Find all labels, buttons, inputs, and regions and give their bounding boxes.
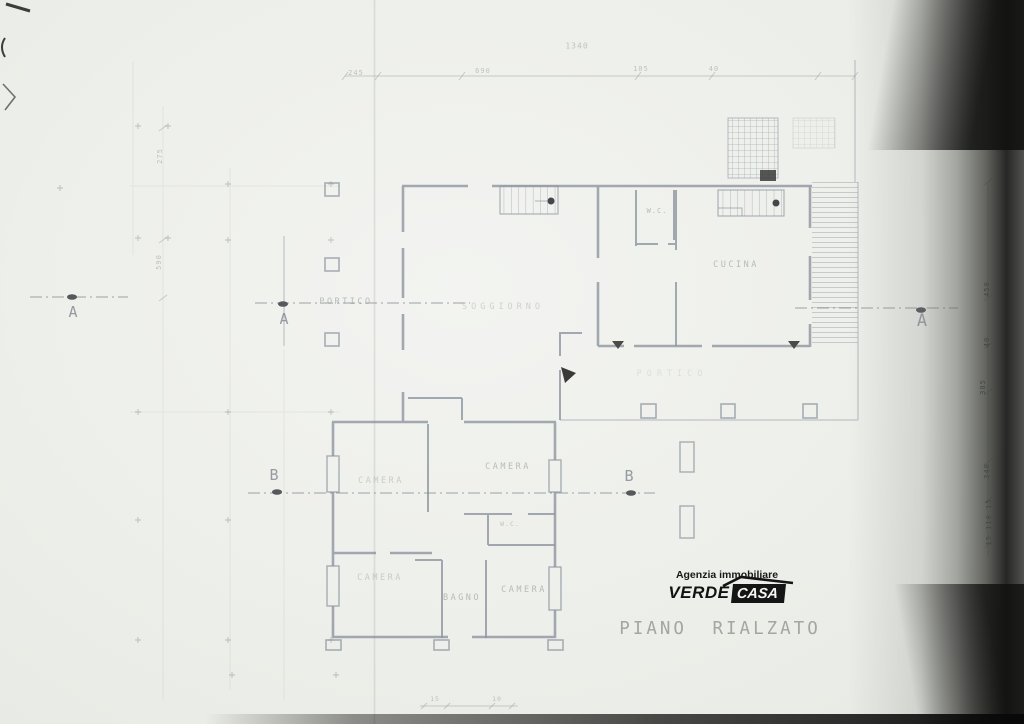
dimension-right-3: 305 (979, 379, 987, 395)
pencil-cross-marks (57, 123, 339, 678)
side-ramp-hatch (812, 182, 858, 344)
room-label-camera-left: CAMERA (358, 476, 404, 486)
entrance-arrow (561, 367, 576, 383)
dimension-left-1: 275 (156, 148, 164, 164)
section-marker-a-portico: A (279, 310, 288, 328)
scan-corner-marks (2, 4, 30, 110)
room-label-camera-center: CAMERA (485, 462, 531, 472)
room-label-wc-lower: W.C. (500, 520, 520, 528)
dimension-bottom-2: 10 (492, 695, 502, 703)
room-label-camera-bottom-center: CAMERA (501, 585, 547, 595)
dimension-top-4: 105 (633, 65, 649, 73)
room-label-portico-rear: PORTICO (637, 369, 708, 379)
exterior-stair-hatch (728, 118, 835, 181)
terrace-edges (284, 60, 858, 420)
dimension-right-5: 15 110 15 (985, 499, 993, 546)
inner-walls (408, 190, 676, 638)
room-label-wc-upper: W.C. (647, 207, 668, 215)
dimension-left-2: 590 (155, 254, 163, 270)
agency-logo: Agenzia immobiliare VERDE CASA (664, 569, 790, 603)
section-marker-a-left: A (68, 303, 77, 321)
section-marker-a-right: A (917, 311, 927, 331)
room-label-soggiorno: SOGGIORNO (462, 302, 544, 312)
dimension-top-1: 245 (348, 69, 364, 77)
room-label-cucina: CUCINA (713, 260, 759, 270)
floor-plan-drawing (0, 0, 1024, 724)
room-label-bagno: BAGNO (443, 593, 481, 603)
agency-brand: VERDE CASA (664, 583, 790, 603)
room-label-camera-bottom-left: CAMERA (357, 573, 403, 583)
dimension-top-2: 690 (475, 67, 491, 75)
plan-title: PIANO RIALZATO (619, 619, 821, 639)
staircase-symbols (500, 186, 784, 216)
logo-house-roof-icon (721, 575, 797, 587)
dimension-top-3: 1340 (565, 42, 588, 51)
scanned-floor-plan-page: PORTICO SOGGIORNO W.C. CUCINA CAMERA CAM… (0, 0, 1024, 724)
dimension-right-1: 450 (983, 281, 991, 297)
dimension-top-5: 40 (709, 65, 719, 73)
dimension-right-2: 40 (983, 337, 991, 347)
dimension-bottom-1: 15 (430, 695, 440, 703)
section-marker-b-left: B (269, 466, 278, 484)
room-label-portico: PORTICO (319, 297, 372, 307)
section-marker-b-right: B (624, 467, 633, 485)
dimension-right-4: 340 (983, 463, 991, 479)
